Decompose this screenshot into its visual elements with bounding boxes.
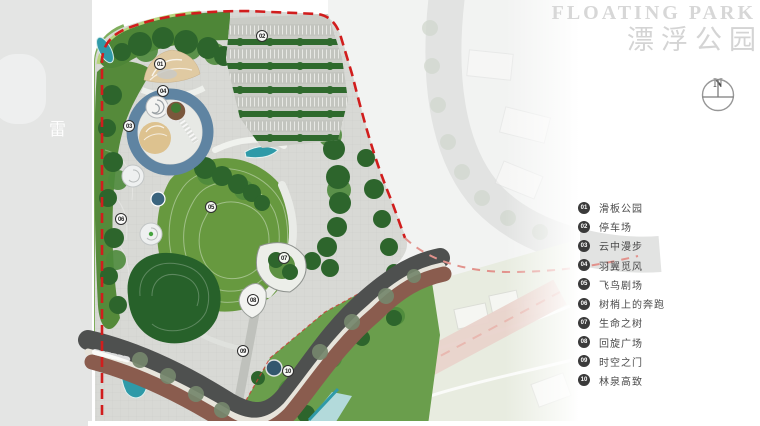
fade-to-page: [505, 0, 580, 426]
legend-badge: 05: [578, 278, 590, 290]
bottom-margin: [88, 421, 760, 426]
tan-mound: [139, 122, 171, 154]
spiral-tower: [146, 96, 168, 118]
legend-item: 09 时空之门: [578, 355, 665, 368]
legend-badge: 06: [578, 298, 590, 310]
legend-label: 滑板公园: [599, 200, 643, 215]
legend-badge: 04: [578, 259, 590, 271]
legend-badge: 01: [578, 202, 590, 214]
plan-marker-01: 01: [154, 58, 166, 70]
legend-item: 05 飞鸟剧场: [578, 278, 665, 291]
legend-badge: 02: [578, 221, 590, 233]
legend-label: 云中漫步: [599, 238, 643, 253]
legend-label: 林泉高致: [599, 373, 643, 388]
title-zh: 漂浮公园: [552, 24, 760, 56]
legend-badge: 10: [578, 374, 590, 386]
plan-marker-09: 09: [237, 345, 249, 357]
legend-label: 树梢上的奔跑: [599, 296, 665, 311]
dark-pond: [266, 360, 282, 376]
plan-marker-04: 04: [157, 85, 169, 97]
legend-item: 07 生命之树: [578, 316, 665, 329]
legend-item: 08 回旋广场: [578, 336, 665, 349]
plan-marker-08: 08: [247, 294, 259, 306]
plan-marker-06: 06: [115, 213, 127, 225]
legend-label: 飞鸟剧场: [599, 277, 643, 292]
legend-badge: 03: [578, 240, 590, 252]
plan-marker-05: 05: [205, 201, 217, 213]
legend-item: 03 云中漫步: [578, 239, 665, 252]
legend: 01 滑板公园 02 停车场 03 云中漫步 04 羽翼觅风 05 飞鸟剧场 0…: [578, 201, 665, 387]
compass-icon: [699, 76, 737, 114]
legend-label: 回旋广场: [599, 335, 643, 350]
legend-badge: 07: [578, 317, 590, 329]
plan-marker-07: 07: [278, 252, 290, 264]
legend-item: 01 滑板公园: [578, 201, 665, 214]
legend-item: 10 林泉高致: [578, 374, 665, 387]
small-round-pool: [151, 192, 165, 206]
legend-badge: 08: [578, 336, 590, 348]
legend-item: 02 停车场: [578, 220, 665, 233]
north-arrow: N: [699, 76, 737, 90]
masterplan-sheet: 雷 FLOATING PARK 漂浮公园 N 01 02 03 04 05 06…: [0, 0, 760, 426]
legend-badge: 09: [578, 355, 590, 367]
legend-label: 羽翼觅风: [599, 258, 643, 273]
plan-marker-02: 02: [256, 30, 268, 42]
plan-marker-10: 10: [282, 365, 294, 377]
title-en: FLOATING PARK: [552, 2, 756, 24]
ring-walk-feature: [132, 94, 208, 170]
road-name-label: 雷: [49, 115, 68, 140]
plan-marker-03: 03: [123, 120, 135, 132]
legend-label: 生命之树: [599, 315, 643, 330]
legend-label: 时空之门: [599, 354, 643, 369]
legend-label: 停车场: [599, 219, 632, 234]
title-block: FLOATING PARK 漂浮公园: [552, 2, 756, 56]
legend-item: 06 树梢上的奔跑: [578, 297, 665, 310]
legend-item: 04 羽翼觅风: [578, 259, 665, 272]
